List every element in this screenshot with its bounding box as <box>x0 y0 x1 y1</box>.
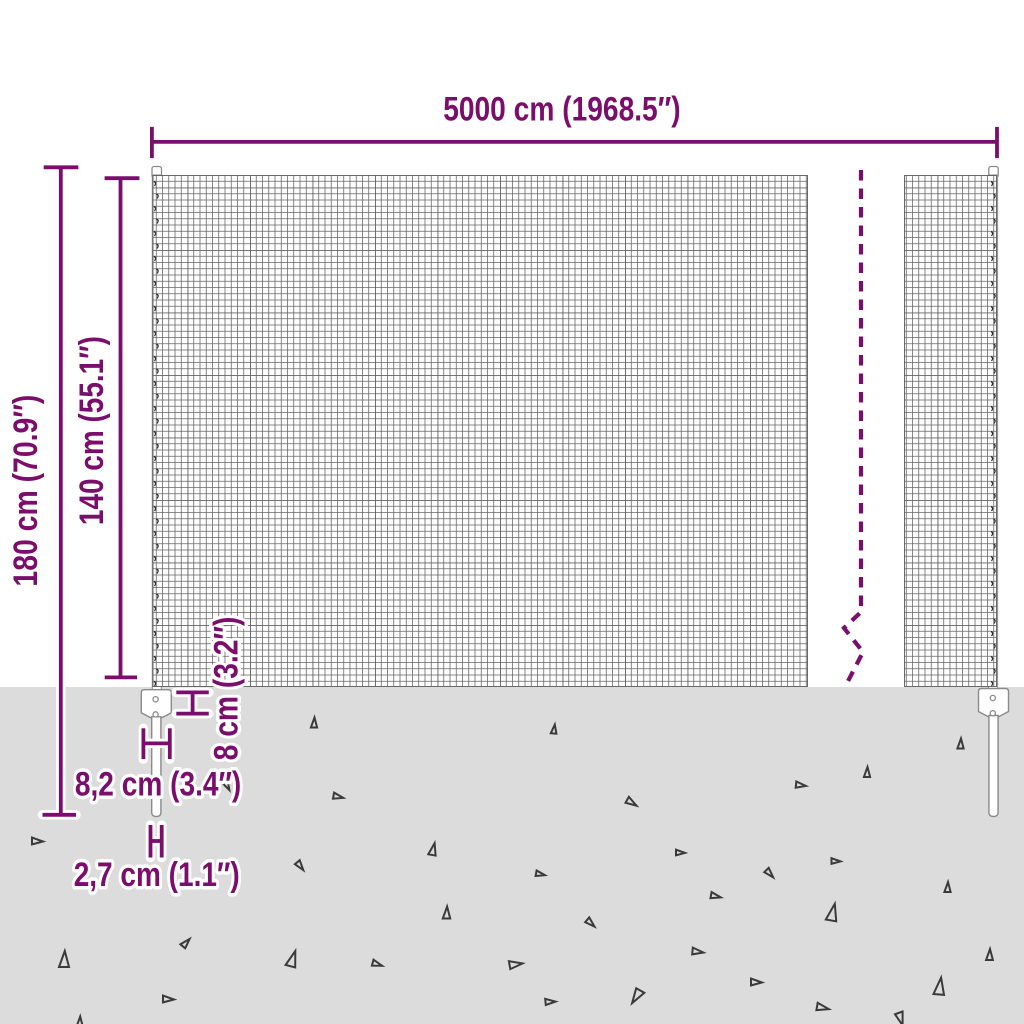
svg-text:140 cm (55.1″): 140 cm (55.1″) <box>73 336 111 525</box>
svg-text:8,2 cm (3.4″): 8,2 cm (3.4″) <box>75 765 241 803</box>
svg-text:180 cm (70.9″): 180 cm (70.9″) <box>7 395 45 587</box>
svg-text:5000 cm (1968.5″): 5000 cm (1968.5″) <box>443 91 680 129</box>
svg-text:8 cm (3.2″): 8 cm (3.2″) <box>208 617 246 761</box>
svg-text:2,7 cm (1.1″): 2,7 cm (1.1″) <box>74 856 240 894</box>
